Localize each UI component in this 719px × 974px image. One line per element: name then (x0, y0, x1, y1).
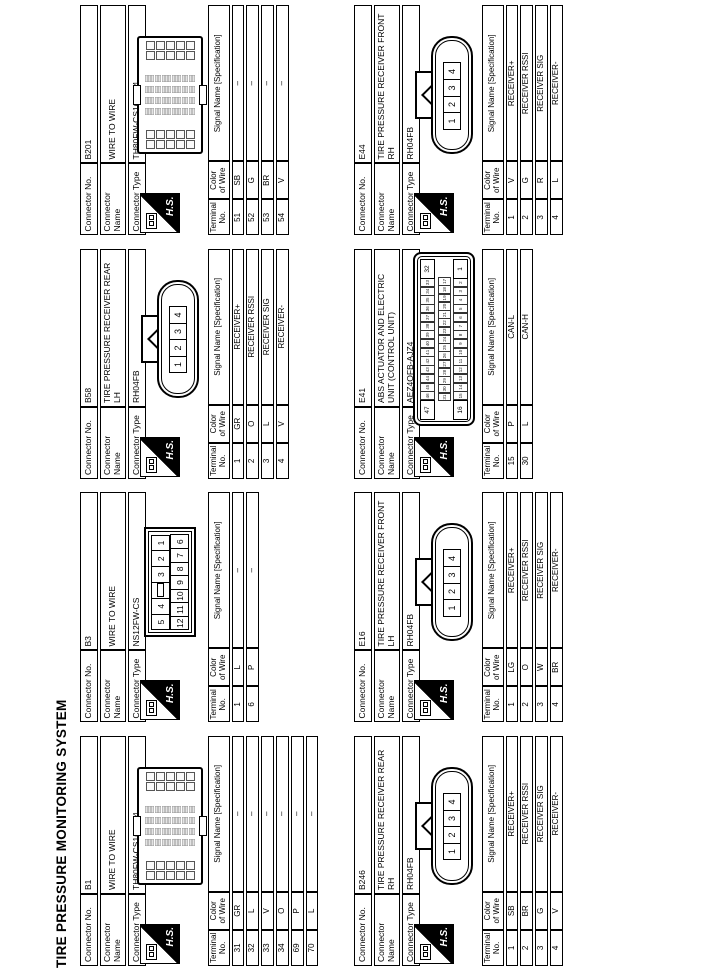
color-of-wire-header: Colorof Wire (482, 892, 504, 930)
pin-cell: 38 (420, 322, 435, 331)
pin-cell: 34 (420, 287, 435, 296)
signal-name-cell: RECEIVER SIG (535, 736, 548, 892)
pin-cell: 30 (438, 384, 451, 393)
header-row: Connector No.E16 (354, 493, 372, 723)
pin-cell (166, 782, 175, 791)
terminal-row: 51SB– (232, 5, 245, 235)
signal-name-cell: CAN-L (506, 249, 519, 405)
header-row: Connector NameTIRE PRESSURE RECEIVER REA… (374, 736, 400, 966)
terminal-no-cell: 52 (246, 199, 259, 235)
wire-color-cell: G (520, 161, 533, 199)
header-line: No. (219, 933, 228, 963)
terminal-no-header: TerminalNo. (208, 686, 230, 722)
pin-cell: 21 (438, 310, 451, 319)
header-line: No. (493, 202, 502, 232)
signal-name-cell: – (291, 736, 304, 892)
ns12-connector-drawing: 543211211109876 (144, 528, 196, 638)
terminal-row: 4LRECEIVER- (550, 5, 563, 235)
pin-cell: 43 (420, 365, 435, 374)
header-row: Connector No.E41 (354, 249, 372, 479)
connector-no-value: E41 (354, 249, 372, 407)
terminal-row: 33V– (261, 736, 274, 966)
terminal-no-cell: 53 (261, 199, 274, 235)
terminal-no-header: TerminalNo. (208, 930, 230, 966)
pin-cell (156, 861, 165, 870)
pin-column (145, 806, 196, 813)
connector-name-label: Connector Name (374, 651, 400, 723)
terminal-table-header-row: TerminalNo.Colorof WireSignal Name [Spec… (208, 5, 230, 235)
pin-cell (176, 782, 185, 791)
header-row: Connector NameABS ACTUATOR AND ELECTRIC … (374, 249, 400, 479)
wire-color-cell: L (261, 405, 274, 443)
pin-cell: 13 (453, 374, 468, 383)
header-line: No. (493, 689, 502, 719)
pin-cell (166, 131, 175, 140)
pin-cell: 4 (169, 306, 187, 324)
terminal-table-header-row: TerminalNo.Colorof WireSignal Name [Spec… (208, 736, 230, 966)
connector-no-label: Connector No. (80, 651, 98, 723)
terminal-no-cell: 33 (261, 930, 274, 966)
connector-drawing (136, 0, 204, 192)
connector-no-label: Connector No. (80, 894, 98, 966)
connector-view-icon (420, 457, 431, 473)
signal-name-cell: RECEIVER+ (232, 249, 245, 405)
wire-color-cell: G (246, 161, 259, 199)
pin-cell (176, 42, 185, 51)
connector-block-b3: Connector No.B3Connector NameWIRE TO WIR… (78, 482, 348, 725)
signal-name-cell: – (276, 5, 289, 161)
pin-cell: 6 (453, 313, 468, 322)
terminal-row: 1L– (232, 492, 245, 722)
signal-name-cell: – (232, 492, 245, 648)
pin-cell: 4 (443, 793, 461, 811)
header-line: Signal Name [Specification] (214, 739, 223, 889)
terminal-table: TerminalNo.Colorof WireSignal Name [Spec… (206, 492, 261, 722)
corner-pin-cell: 1 (453, 259, 468, 279)
pin-cell (146, 871, 155, 880)
connector-block-b1: Connector No.B1Connector NameWIRE TO WIR… (78, 725, 348, 968)
pin-cell: 11 (170, 602, 189, 617)
signal-name-cell: RECEIVER SIG (261, 249, 274, 405)
signal-name-cell: RECEIVER+ (506, 492, 519, 648)
pin-cell: 3 (443, 566, 461, 584)
terminal-table-header-row: TerminalNo.Colorof WireSignal Name [Spec… (482, 492, 504, 722)
pin-cell: 19 (438, 294, 451, 303)
pin-cell (166, 42, 175, 51)
terminal-no-header: TerminalNo. (482, 443, 504, 479)
terminal-row: 1VRECEIVER+ (506, 5, 519, 235)
icon-dot (423, 946, 428, 951)
header-row: Connector No.E44 (354, 6, 372, 236)
pin-cell: 9 (453, 339, 468, 348)
terminal-row: 1GRRECEIVER+ (232, 249, 245, 479)
signal-name-cell: RECEIVER RSSI (246, 249, 259, 405)
pin-cell (156, 52, 165, 61)
pin-cell: 5 (453, 304, 468, 313)
pin-cell (176, 52, 185, 61)
pin-cell: 5 (151, 614, 170, 631)
connector-drawing: 1234 (410, 0, 478, 192)
signal-name-cell: – (276, 736, 289, 892)
connector-drawing: 1234 (136, 243, 204, 435)
pin-cell: 3 (443, 79, 461, 97)
corner-pin-cell: 32 (420, 259, 435, 279)
connector-block-e16: Connector No.E16Connector NameTIRE PRESS… (352, 482, 622, 725)
pin-cell: 20 (438, 302, 451, 311)
signal-name-cell: CAN-H (520, 249, 533, 405)
header-row: Connector No.B246 (354, 736, 372, 966)
terminal-row: 6P– (246, 492, 259, 722)
pin-cell: 1 (169, 356, 187, 374)
terminal-no-cell: 4 (276, 443, 289, 479)
pin-cells: 1234 (443, 793, 461, 859)
header-row: Connector NameTIRE PRESSURE RECEIVER FRO… (374, 493, 400, 723)
pin-cell: 15 (453, 391, 468, 400)
pin-group-right (146, 772, 195, 791)
connector-name-label: Connector Name (374, 894, 400, 966)
manual-page: TIRE PRESSURE MONITORING SYSTEM Connecto… (0, 0, 719, 974)
hs-mark-icon: H.S. (140, 194, 180, 234)
pin-cell: 9 (170, 575, 189, 590)
pin-cell: 1 (443, 843, 461, 861)
pin-column (145, 98, 196, 105)
pin-cell: 14 (453, 383, 468, 392)
pin-cell (166, 772, 175, 781)
header-line: of Wire (219, 651, 228, 683)
connector-no-value: E16 (354, 493, 372, 651)
pin-cell (176, 131, 185, 140)
pin-cell: 4 (151, 598, 170, 615)
pin-cell: 11 (453, 356, 468, 365)
signal-name-header: Signal Name [Specification] (482, 249, 504, 405)
icon-dot (423, 216, 428, 221)
rh04fb-connector-drawing: 1234 (415, 524, 473, 642)
wire-color-cell: SB (506, 892, 519, 930)
icon-dot (423, 222, 428, 227)
pin-cell: 27 (438, 360, 451, 369)
pin-cell: 28 (438, 368, 451, 377)
terminal-no-cell: 2 (246, 443, 259, 479)
icon-dot (149, 459, 154, 464)
wire-color-cell: V (276, 161, 289, 199)
wire-color-cell: L (306, 892, 319, 930)
terminal-no-cell: 1 (506, 199, 519, 235)
pin-cell: 7 (453, 322, 468, 331)
terminal-no-cell: 1 (506, 930, 519, 966)
header-row: Connector No.B3 (80, 493, 98, 723)
abs-connector-drawing: 4746454443424140393837363534333231302928… (413, 252, 475, 426)
connector-drawing: 543211211109876 (136, 487, 204, 679)
terminal-no-cell: 1 (232, 686, 245, 722)
terminal-no-cell: 3 (535, 686, 548, 722)
pin-cell (186, 861, 195, 870)
signal-name-cell: – (306, 736, 319, 892)
pin-cell: 35 (420, 295, 435, 304)
connector-no-label: Connector No. (354, 164, 372, 236)
color-of-wire-header: Colorof Wire (208, 161, 230, 199)
connector-name-value: TIRE PRESSURE RECEIVER REAR LH (100, 249, 126, 407)
pin-cell: 3 (443, 810, 461, 828)
header-line: No. (219, 689, 228, 719)
connector-view-icon (146, 944, 157, 960)
connector-block-e41: Connector No.E41Connector NameABS ACTUAT… (352, 238, 622, 481)
color-of-wire-header: Colorof Wire (208, 405, 230, 443)
terminal-no-cell: 3 (261, 443, 274, 479)
wire-color-cell: GR (232, 892, 245, 930)
pin-cell (176, 871, 185, 880)
terminal-row: 4VRECEIVER- (550, 736, 563, 966)
pin-cell: 8 (453, 330, 468, 339)
header-row: Connector No.B58 (80, 249, 98, 479)
pin-cell: 6 (170, 534, 189, 549)
pin-cell: 12 (170, 616, 189, 631)
hs-label: H.S. (439, 927, 450, 946)
pin-column (145, 828, 196, 835)
connector-drawing (136, 730, 204, 922)
signal-name-header: Signal Name [Specification] (208, 5, 230, 161)
pin-cell: 36 (420, 304, 435, 313)
pin-cell: 4 (443, 63, 461, 81)
signal-name-header: Signal Name [Specification] (482, 736, 504, 892)
signal-name-cell: – (232, 736, 245, 892)
pin-cells: 1234 (443, 550, 461, 616)
header-line: Signal Name [Specification] (488, 8, 497, 158)
wire-color-cell: R (535, 161, 548, 199)
pin-field (145, 76, 196, 116)
connector-name-value: ABS ACTUATOR AND ELECTRIC UNIT (CONTROL … (374, 249, 400, 407)
pin-group-left (146, 131, 195, 150)
wire-color-cell: BR (261, 161, 274, 199)
rh04fb-connector-drawing: 1234 (141, 280, 199, 398)
terminal-no-header: TerminalNo. (208, 199, 230, 235)
corner-pin-cell: 16 (453, 400, 468, 420)
connector-no-value: B3 (80, 493, 98, 651)
header-line: of Wire (219, 408, 228, 440)
icon-dot (149, 465, 154, 470)
terminal-no-cell: 6 (246, 686, 259, 722)
hs-label: H.S. (165, 684, 176, 703)
terminal-no-cell: 31 (232, 930, 245, 966)
terminal-no-cell: 4 (550, 930, 563, 966)
pin-cell: 39 (420, 330, 435, 339)
pin-cell (186, 42, 195, 51)
connector-no-label: Connector No. (354, 651, 372, 723)
pin-field (145, 806, 196, 846)
pin-cell: 3 (169, 323, 187, 341)
pin-cell: 25 (438, 343, 451, 352)
header-row: Connector NameTIRE PRESSURE RECEIVER REA… (100, 249, 126, 479)
terminal-row: 3WRECEIVER SIG (535, 492, 548, 722)
pin-cell (156, 141, 165, 150)
pin-column (145, 76, 196, 83)
wire-color-cell: L (550, 161, 563, 199)
wire-color-cell: BR (550, 648, 563, 686)
rh04fb-connector-drawing: 1234 (415, 767, 473, 885)
signal-name-header: Signal Name [Specification] (482, 5, 504, 161)
pin-cell: 12 (453, 365, 468, 374)
signal-name-cell: RECEIVER- (276, 249, 289, 405)
hs-mark-icon: H.S. (140, 924, 180, 964)
terminal-no-cell: 54 (276, 199, 289, 235)
pin-cell (146, 52, 155, 61)
pin-cell: 4 (453, 295, 468, 304)
pin-cell: 33 (420, 278, 435, 287)
pin-cell (186, 52, 195, 61)
pin-cell (146, 42, 155, 51)
terminal-table: TerminalNo.Colorof WireSignal Name [Spec… (480, 492, 565, 722)
connector-body: 1234 (431, 767, 473, 885)
connector-body: 1234 (431, 524, 473, 642)
connector-name-value: TIRE PRESSURE RECEIVER FRONT LH (374, 493, 400, 651)
signal-name-cell: RECEIVER- (550, 5, 563, 161)
header-row: Connector No.B1 (80, 736, 98, 966)
terminal-table: TerminalNo.Colorof WireSignal Name [Spec… (480, 5, 565, 235)
signal-name-cell: – (261, 5, 274, 161)
terminal-row: 1SBRECEIVER+ (506, 736, 519, 966)
terminal-table: TerminalNo.Colorof WireSignal Name [Spec… (206, 736, 320, 966)
pin-cell: 29 (438, 376, 451, 385)
corner-pin-cell: 47 (420, 400, 435, 420)
wire-color-cell: L (232, 648, 245, 686)
pin-cell: 10 (453, 348, 468, 357)
connector-no-value: B246 (354, 736, 372, 894)
hs-mark-icon: H.S. (414, 681, 454, 721)
pin-cell (186, 141, 195, 150)
hs-label: H.S. (439, 440, 450, 459)
pin-row: 1211109876 (170, 535, 189, 631)
connector-block-b58: Connector No.B58Connector NameTIRE PRESS… (78, 238, 348, 481)
wire-color-cell: W (535, 648, 548, 686)
terminal-row: 34O– (276, 736, 289, 966)
pin-column (145, 87, 196, 94)
pin-group-right (146, 42, 195, 61)
header-line: Signal Name [Specification] (214, 252, 223, 402)
hs-label: H.S. (165, 927, 176, 946)
wire-color-cell: P (291, 892, 304, 930)
pin-cell (156, 772, 165, 781)
connector-drawing: 1234 (410, 487, 478, 679)
terminal-no-cell: 3 (535, 199, 548, 235)
terminal-table-header-row: TerminalNo.Colorof WireSignal Name [Spec… (482, 736, 504, 966)
pin-cell (192, 87, 195, 94)
pin-cell: 1 (443, 112, 461, 130)
pin-cell: 1 (151, 535, 170, 552)
connector-name-value: WIRE TO WIRE (100, 6, 126, 164)
terminal-table-header-row: TerminalNo.Colorof WireSignal Name [Spec… (482, 249, 504, 479)
terminal-row: 1LGRECEIVER+ (506, 492, 519, 722)
pin-cell (186, 782, 195, 791)
connector-no-value: B58 (80, 249, 98, 407)
icon-dot (149, 709, 154, 714)
terminal-row: 70L– (306, 736, 319, 966)
icon-dot (423, 465, 428, 470)
hs-label: H.S. (165, 197, 176, 216)
hs-label: H.S. (439, 684, 450, 703)
terminal-no-cell: 2 (520, 686, 533, 722)
icon-dot (149, 952, 154, 957)
connector-no-value: E44 (354, 6, 372, 164)
mounting-tab-top (133, 816, 141, 836)
connector-body: 1234 (157, 280, 199, 398)
terminal-no-cell: 30 (520, 443, 533, 479)
pin-cell (176, 861, 185, 870)
signal-name-cell: RECEIVER- (550, 736, 563, 892)
header-line: Signal Name [Specification] (488, 252, 497, 402)
header-line: of Wire (493, 895, 502, 927)
header-line: No. (219, 446, 228, 476)
pin-cell: 44 (420, 374, 435, 383)
icon-dot (149, 946, 154, 951)
pin-cell (186, 772, 195, 781)
wire-color-cell: V (506, 161, 519, 199)
color-of-wire-header: Colorof Wire (208, 648, 230, 686)
pin-cell (146, 141, 155, 150)
header-row: Connector NameWIRE TO WIRE (100, 6, 126, 236)
pin-cell: 45 (420, 383, 435, 392)
pin-cell: 2 (151, 550, 170, 567)
header-line: Signal Name [Specification] (488, 495, 497, 645)
terminal-row: 3LRECEIVER SIG (261, 249, 274, 479)
pin-cell (146, 861, 155, 870)
terminal-row: 2BRRECEIVER RSSI (520, 736, 533, 966)
wire-color-cell: L (246, 892, 259, 930)
terminal-table: TerminalNo.Colorof WireSignal Name [Spec… (480, 249, 535, 479)
terminal-table-header-row: TerminalNo.Colorof WireSignal Name [Spec… (208, 492, 230, 722)
th80-connector-drawing (137, 37, 203, 155)
pin-cell (186, 131, 195, 140)
connector-name-value: TIRE PRESSURE RECEIVER REAR RH (374, 736, 400, 894)
pin-cell: 8 (170, 562, 189, 577)
wire-color-cell: O (246, 405, 259, 443)
connector-no-label: Connector No. (354, 407, 372, 479)
terminal-row: 32L– (246, 736, 259, 966)
icon-dot (423, 703, 428, 708)
icon-dot (149, 703, 154, 708)
hs-mark-icon: H.S. (140, 681, 180, 721)
signal-name-cell: – (246, 5, 259, 161)
terminal-row: 52G– (246, 5, 259, 235)
connector-name-value: WIRE TO WIRE (100, 493, 126, 651)
terminal-row: 54V– (276, 5, 289, 235)
pin-cell (156, 871, 165, 880)
mounting-tab-top (133, 86, 141, 106)
terminal-table: TerminalNo.Colorof WireSignal Name [Spec… (206, 5, 291, 235)
signal-name-header: Signal Name [Specification] (208, 249, 230, 405)
terminal-row: 69P– (291, 736, 304, 966)
pin-column (145, 109, 196, 116)
signal-name-cell: RECEIVER+ (506, 5, 519, 161)
pin-cell: 17 (438, 277, 451, 286)
signal-name-cell: RECEIVER RSSI (520, 5, 533, 161)
connector-view-icon (420, 944, 431, 960)
pin-cell (156, 782, 165, 791)
connector-name-label: Connector Name (100, 164, 126, 236)
signal-name-cell: – (246, 492, 259, 648)
header-line: Signal Name [Specification] (214, 495, 223, 645)
signal-name-cell: RECEIVER- (550, 492, 563, 648)
connector-view-icon (146, 214, 157, 230)
pin-cell (151, 582, 170, 599)
pin-cell (192, 806, 195, 813)
terminal-row: 4VRECEIVER- (276, 249, 289, 479)
wire-color-cell: V (276, 405, 289, 443)
terminal-row: 2GRECEIVER RSSI (520, 5, 533, 235)
rotated-page-content: TIRE PRESSURE MONITORING SYSTEM Connecto… (0, 0, 719, 974)
terminal-no-cell: 34 (276, 930, 289, 966)
pin-cell: 10 (170, 589, 189, 604)
pin-cell (146, 772, 155, 781)
wire-color-cell: P (246, 648, 259, 686)
